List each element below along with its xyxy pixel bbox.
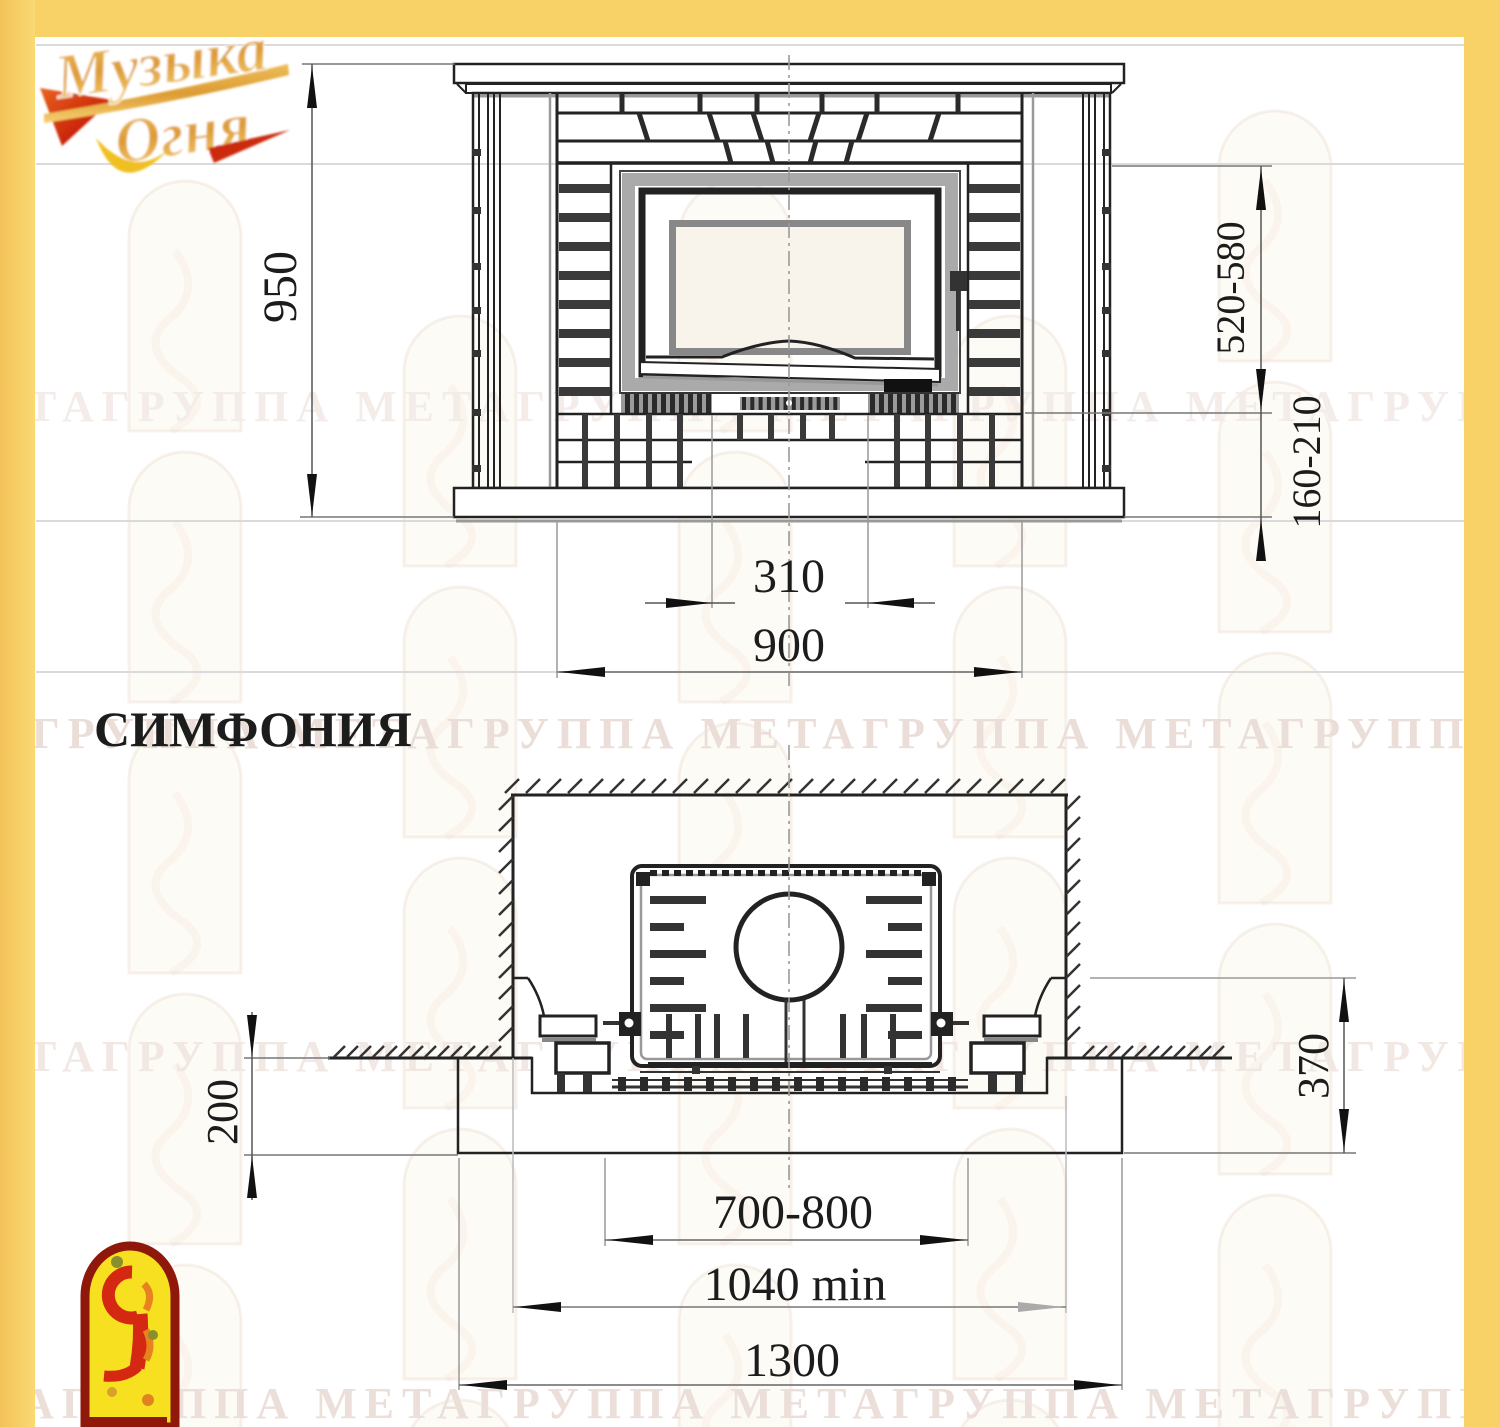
svg-text:700-800: 700-800 [713,1186,873,1239]
svg-text:СИМФОНИЯ: СИМФОНИЯ [94,701,412,757]
svg-text:160-210: 160-210 [1284,395,1329,528]
svg-text:1040 min: 1040 min [704,1258,887,1311]
svg-text:900: 900 [753,619,825,672]
svg-text:310: 310 [753,550,825,603]
svg-text:520-580: 520-580 [1208,221,1253,354]
svg-text:950: 950 [254,251,307,323]
svg-text:370: 370 [1289,1033,1338,1099]
svg-text:200: 200 [198,1079,247,1145]
svg-text:1300: 1300 [744,1334,840,1387]
